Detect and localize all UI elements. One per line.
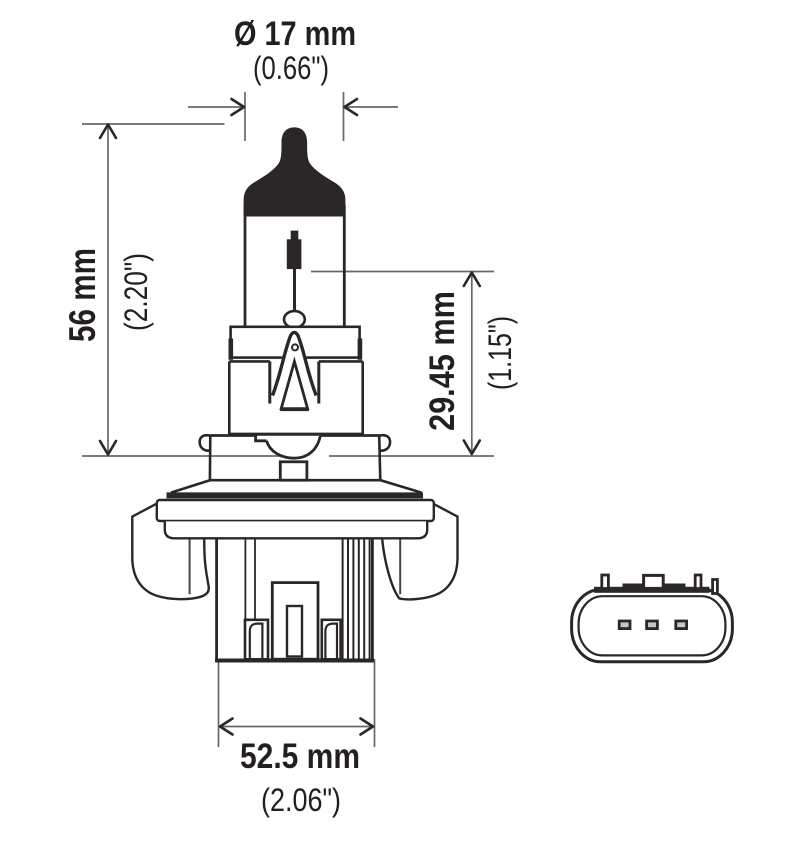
svg-text:(1.15"): (1.15")	[482, 316, 518, 390]
svg-text:(2.06"): (2.06")	[261, 782, 341, 818]
svg-text:(0.66"): (0.66")	[253, 50, 329, 86]
svg-text:(2.20"): (2.20")	[118, 253, 154, 331]
svg-text:56 mm: 56 mm	[62, 248, 103, 342]
svg-text:Ø 17 mm: Ø 17 mm	[234, 15, 356, 53]
svg-text:29.45 mm: 29.45 mm	[423, 291, 462, 431]
svg-text:52.5 mm: 52.5 mm	[240, 737, 360, 776]
